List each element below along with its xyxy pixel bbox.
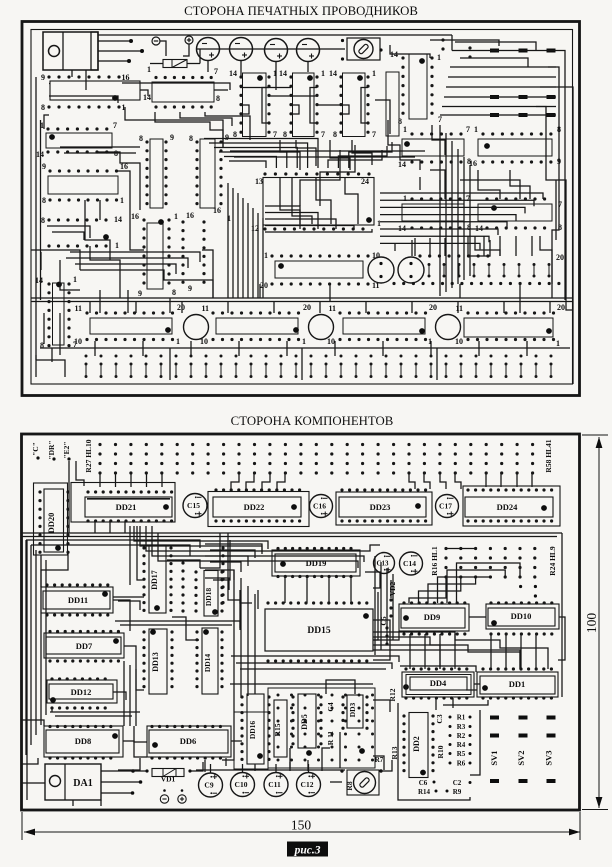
svg-text:1: 1	[174, 212, 178, 221]
svg-text:100: 100	[584, 613, 599, 634]
svg-text:C16: C16	[313, 502, 326, 511]
svg-text:11: 11	[201, 304, 209, 313]
svg-text:24: 24	[361, 177, 369, 186]
svg-text:"E2": "E2"	[62, 441, 71, 458]
svg-text:DD10: DD10	[511, 611, 532, 621]
svg-text:20: 20	[556, 253, 564, 262]
svg-text:8: 8	[189, 134, 193, 143]
svg-text:14: 14	[329, 69, 337, 78]
svg-text:7: 7	[438, 115, 442, 124]
svg-text:13: 13	[255, 177, 263, 186]
svg-text:14: 14	[398, 160, 406, 169]
svg-text:R16 HL1: R16 HL1	[430, 546, 439, 576]
svg-text:DA1: DA1	[73, 778, 92, 789]
svg-text:1: 1	[474, 125, 478, 134]
svg-text:C10: C10	[235, 780, 248, 789]
svg-text:DD13: DD13	[151, 652, 160, 672]
svg-text:R3: R3	[457, 723, 466, 731]
svg-text:DD9: DD9	[424, 612, 441, 622]
svg-text:DD15: DD15	[307, 626, 330, 636]
svg-text:DD7: DD7	[76, 641, 93, 651]
svg-text:DD3: DD3	[348, 702, 357, 717]
svg-text:C11: C11	[268, 780, 281, 789]
svg-text:10: 10	[455, 337, 463, 346]
svg-text:11: 11	[74, 304, 82, 313]
svg-text:DD22: DD22	[244, 502, 265, 512]
svg-text:1: 1	[437, 53, 441, 62]
svg-text:1: 1	[273, 69, 277, 78]
svg-text:1: 1	[176, 337, 180, 346]
svg-text:R58 HL41: R58 HL41	[544, 439, 553, 472]
svg-text:9: 9	[188, 284, 192, 293]
svg-text:16: 16	[186, 211, 194, 220]
svg-text:8: 8	[233, 130, 237, 139]
svg-text:1: 1	[73, 275, 77, 284]
svg-text:R1: R1	[457, 714, 466, 722]
svg-text:8: 8	[333, 130, 337, 139]
svg-text:1: 1	[264, 251, 268, 260]
svg-text:1: 1	[120, 196, 124, 205]
svg-text:14: 14	[229, 69, 237, 78]
svg-text:9: 9	[138, 289, 142, 298]
svg-text:1: 1	[403, 125, 407, 134]
svg-text:C5: C5	[379, 616, 388, 625]
svg-text:14: 14	[114, 215, 122, 224]
svg-text:10: 10	[327, 337, 335, 346]
svg-text:7: 7	[558, 200, 562, 209]
svg-text:C15: C15	[187, 501, 200, 510]
svg-text:9: 9	[225, 133, 229, 142]
svg-text:1: 1	[556, 339, 560, 348]
svg-text:8: 8	[557, 125, 561, 134]
svg-text:DD4: DD4	[430, 678, 447, 688]
svg-text:рис.3: рис.3	[294, 845, 321, 857]
svg-text:8: 8	[41, 103, 45, 112]
svg-text:20: 20	[303, 303, 311, 312]
svg-text:1: 1	[115, 241, 119, 250]
svg-text:1: 1	[302, 337, 306, 346]
svg-text:DD14: DD14	[203, 654, 212, 673]
svg-text:7: 7	[372, 130, 376, 139]
svg-text:DD20: DD20	[46, 513, 56, 534]
svg-text:8: 8	[172, 288, 176, 297]
svg-text:C13: C13	[376, 560, 389, 568]
svg-text:150: 150	[291, 818, 312, 833]
svg-text:8: 8	[283, 130, 287, 139]
svg-text:VD2: VD2	[388, 581, 397, 596]
svg-text:C14: C14	[403, 559, 416, 568]
svg-text:20: 20	[177, 303, 185, 312]
svg-text:20: 20	[260, 281, 268, 290]
svg-text:R2: R2	[457, 732, 466, 740]
svg-text:8: 8	[398, 117, 402, 126]
svg-text:DD11: DD11	[68, 595, 88, 605]
svg-text:DD6: DD6	[180, 736, 197, 746]
svg-text:DD2: DD2	[412, 736, 421, 752]
svg-text:SV1: SV1	[489, 750, 499, 765]
svg-text:SV2: SV2	[516, 750, 526, 765]
svg-text:R4: R4	[457, 741, 466, 749]
svg-text:20: 20	[429, 303, 437, 312]
svg-text:C17: C17	[439, 502, 452, 511]
svg-text:СТОРОНА ПЕЧАТНЫХ ПРОВОДНИКОВ: СТОРОНА ПЕЧАТНЫХ ПРОВОДНИКОВ	[184, 4, 418, 18]
svg-text:C9: C9	[204, 781, 213, 790]
svg-text:11: 11	[328, 304, 336, 313]
svg-text:SV3: SV3	[544, 750, 554, 765]
svg-text:7: 7	[273, 130, 277, 139]
svg-text:R24 HL9: R24 HL9	[548, 546, 557, 576]
svg-text:"DR": "DR"	[47, 440, 56, 459]
svg-text:R10: R10	[436, 745, 445, 758]
svg-text:R6: R6	[457, 760, 466, 768]
svg-text:1: 1	[377, 219, 381, 228]
svg-text:C6: C6	[419, 779, 428, 787]
svg-text:8: 8	[42, 196, 46, 205]
svg-text:7: 7	[321, 130, 325, 139]
svg-text:VD1: VD1	[161, 775, 176, 784]
svg-text:7: 7	[466, 125, 470, 134]
svg-text:14: 14	[143, 93, 151, 102]
svg-text:DD12: DD12	[71, 687, 92, 697]
svg-text:R14: R14	[418, 788, 431, 796]
svg-text:10: 10	[200, 337, 208, 346]
svg-text:11: 11	[455, 304, 463, 313]
svg-text:R27 HL10: R27 HL10	[84, 439, 93, 472]
svg-text:R5: R5	[457, 750, 466, 758]
svg-text:7: 7	[214, 67, 218, 76]
svg-text:16: 16	[131, 212, 139, 221]
svg-text:DD18: DD18	[204, 588, 213, 607]
svg-text:R9: R9	[453, 788, 462, 796]
svg-text:1: 1	[403, 194, 407, 203]
svg-text:DD24: DD24	[497, 502, 519, 512]
svg-text:1: 1	[372, 69, 376, 78]
svg-text:R 11: R 11	[326, 731, 335, 746]
svg-text:7: 7	[113, 121, 117, 130]
svg-text:DD1: DD1	[509, 679, 526, 689]
svg-text:16: 16	[213, 206, 221, 215]
svg-text:9: 9	[42, 162, 46, 171]
svg-text:C2: C2	[453, 779, 462, 787]
svg-text:DD17: DD17	[150, 570, 159, 590]
svg-text:R7: R7	[375, 756, 384, 764]
svg-text:1: 1	[147, 65, 151, 74]
svg-text:DD16: DD16	[248, 721, 257, 740]
svg-text:DD8: DD8	[75, 736, 92, 746]
svg-text:9: 9	[41, 73, 45, 82]
svg-text:C3: C3	[435, 714, 444, 723]
svg-text:1: 1	[321, 69, 325, 78]
svg-text:DD19: DD19	[306, 558, 327, 568]
svg-text:R8: R8	[345, 781, 354, 790]
svg-text:8: 8	[41, 216, 45, 225]
svg-text:8: 8	[558, 223, 562, 232]
svg-text:СТОРОНА КОМПОНЕНТОВ: СТОРОНА КОМПОНЕНТОВ	[231, 414, 394, 428]
svg-text:8: 8	[216, 94, 220, 103]
svg-text:9: 9	[170, 133, 174, 142]
svg-text:20: 20	[557, 303, 565, 312]
svg-text:14: 14	[279, 69, 287, 78]
svg-text:"C": "C"	[31, 442, 40, 456]
svg-text:C4: C4	[326, 702, 335, 711]
svg-text:DD23: DD23	[370, 502, 391, 512]
svg-text:9: 9	[557, 157, 561, 166]
svg-text:10: 10	[74, 337, 82, 346]
svg-text:C12: C12	[301, 780, 314, 789]
svg-text:8: 8	[139, 134, 143, 143]
svg-text:DD21: DD21	[116, 502, 137, 512]
